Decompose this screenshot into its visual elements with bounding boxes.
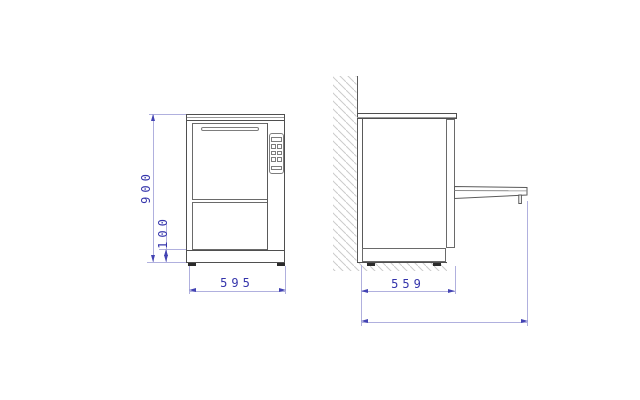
dim-line-depth-open xyxy=(361,322,528,323)
ext-line-depth-right xyxy=(455,266,456,294)
side-plinth xyxy=(362,248,447,263)
dim-label-depth: 559 xyxy=(361,278,455,290)
wall-hatch xyxy=(333,76,357,262)
door-latch xyxy=(519,195,522,204)
wall-line xyxy=(357,76,358,262)
drawing-canvas: 900 100 595 xyxy=(0,0,640,400)
section-hatch xyxy=(330,74,452,276)
ext-line-depth-open-right xyxy=(527,201,528,326)
floor-hatch xyxy=(333,262,447,271)
ext-line-depth-left xyxy=(361,265,362,326)
side-foot-right xyxy=(433,263,441,266)
arrowhead-icon xyxy=(521,319,528,323)
side-view: 559 xyxy=(0,0,640,400)
dim-line-depth xyxy=(361,291,455,292)
side-foot-left xyxy=(367,263,375,266)
side-cabinet-back-line xyxy=(362,119,363,248)
open-door-flap xyxy=(454,184,534,206)
side-worktop-inner-line xyxy=(357,117,456,118)
arrowhead-icon xyxy=(361,319,368,323)
